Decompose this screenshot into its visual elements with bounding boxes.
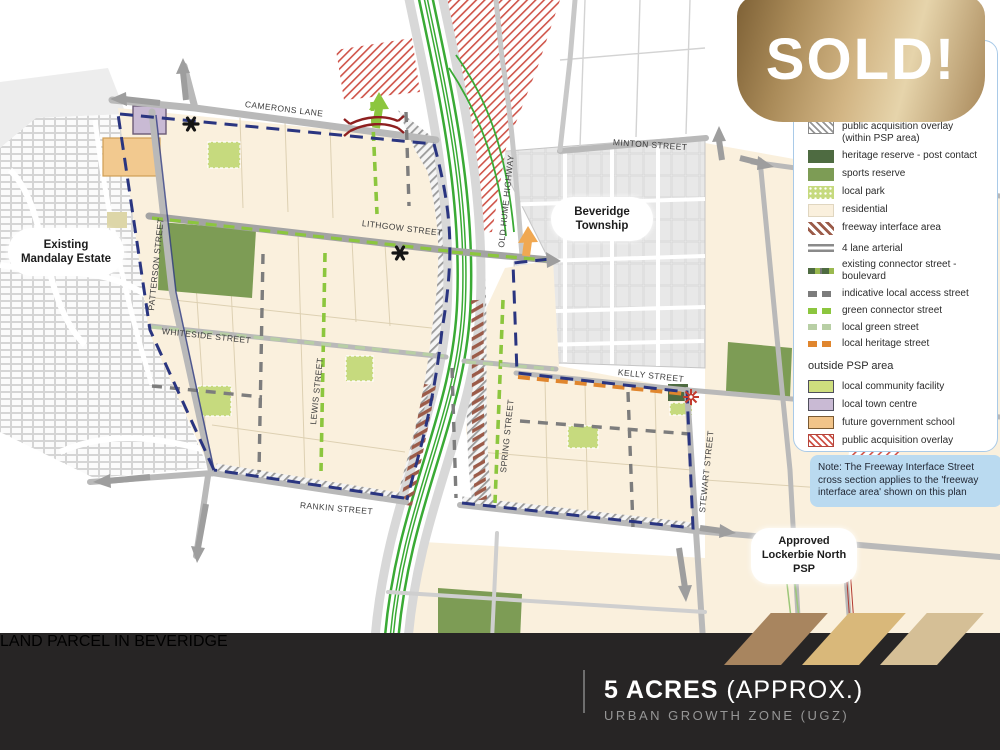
heritage-reserve-swatch-icon [808,150,834,163]
khaki-parcel [107,212,127,228]
four-lane-arterial-swatch-icon [808,244,834,252]
local-green-swatch-icon [808,324,834,330]
label-lockerbie-psp: Approved Lockerbie North PSP [751,528,857,584]
sold-badge: SOLD! [737,0,985,122]
school-swatch-icon [808,416,834,429]
legend-item: 4 lane arterial [808,243,991,255]
town-centre-swatch-icon [808,398,834,411]
legend-item: local town centre [808,398,991,411]
legend-item: future government school [808,416,991,429]
legend-item: local green street [808,322,991,334]
residential-swatch-icon [808,204,834,217]
legend-item: residential [808,204,991,217]
label-mandalay-estate: Existing Mandalay Estate [8,228,124,276]
legend-item: local park [808,186,991,199]
legend-item: local heritage street [808,338,991,350]
legend-item: existing connector street - boulevard [808,259,991,283]
banner-acres: 5 ACRES (APPROX.) [604,676,863,705]
local-park-swatch-icon [808,186,834,199]
legend-item: green connector street [808,305,991,317]
legend-item: sports reserve [808,168,991,181]
flyer: Existing Mandalay Estate Beveridge Towns… [0,0,1000,750]
note-box: Note: The Freeway Interface Street cross… [810,455,1000,507]
sports-reserve-swatch-icon [808,168,834,181]
acquisition-overlay-swatch-icon [808,434,834,447]
green-connector-swatch-icon [808,308,834,314]
legend-item: public acquisition overlay [808,434,991,447]
legend-item: public acquisition overlay (within PSP a… [808,121,991,145]
label-beveridge-township: Beveridge Township [551,197,653,241]
legend-item: freeway interface area [808,222,991,235]
freeway-interface-swatch-icon [808,222,834,235]
legend-outside-header: outside PSP area [808,360,997,372]
sold-badge-label: SOLD! [766,26,956,93]
banner-subtitle: URBAN GROWTH ZONE (UGZ) [604,708,849,723]
legend-item: local community facility [808,380,991,393]
community-facility-swatch-icon [808,380,834,393]
legend-item: heritage reserve - post contact [808,150,991,163]
local-heritage-swatch-icon [808,341,834,347]
banner-divider [583,670,585,713]
local-access-swatch-icon [808,291,834,297]
legend-item: indicative local access street [808,288,991,300]
hatch-gray-swatch-icon [808,121,834,134]
boulevard-swatch-icon [808,268,834,274]
future-school [103,138,160,176]
